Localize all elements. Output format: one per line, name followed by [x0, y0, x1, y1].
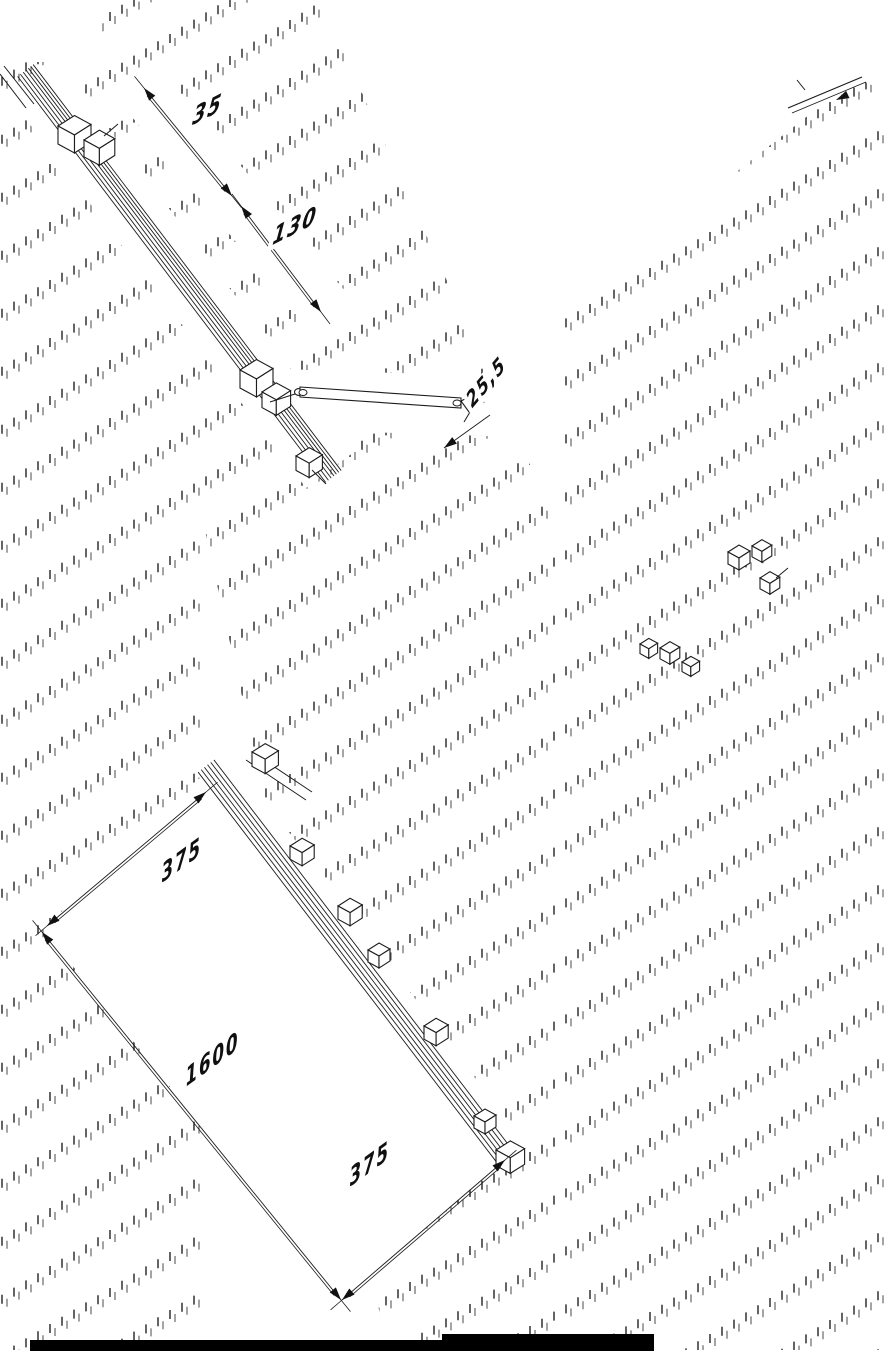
extension-line	[331, 1300, 342, 1310]
bottom-bar-right	[442, 1334, 654, 1351]
extension-line	[341, 1300, 350, 1312]
stay-eye-left	[299, 390, 307, 396]
right-panel-top-edge	[792, 82, 866, 113]
panel-edge-arrow-icon	[836, 91, 850, 100]
right-panel-top-edge	[788, 77, 862, 108]
dim-arrow-stay	[444, 437, 457, 448]
fastener-hook	[776, 568, 788, 578]
stay-eye-right	[453, 400, 461, 406]
edge-tick	[797, 80, 805, 90]
extension-line	[33, 920, 42, 932]
assembly-drawing	[0, 0, 887, 1351]
drawing-canvas: 35 130 25,5 375 1600 375	[0, 0, 887, 1351]
bottom-bar-left	[30, 1340, 442, 1351]
